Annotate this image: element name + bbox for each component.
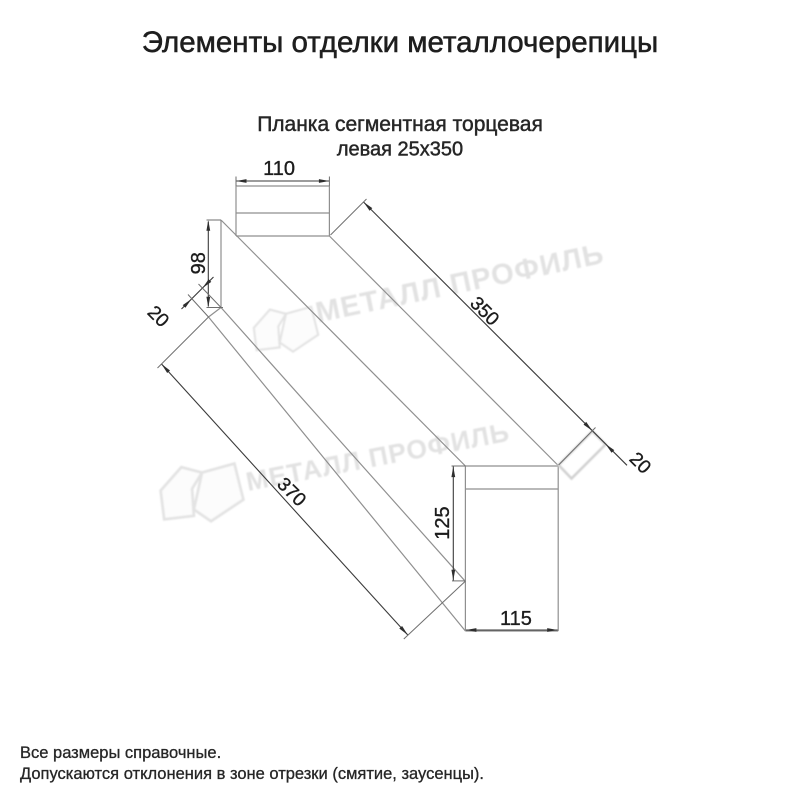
svg-text:110: 110 xyxy=(263,158,295,180)
svg-text:Элементы отделки металлочерепи: Элементы отделки металлочерепицы xyxy=(142,26,658,59)
svg-text:Все размеры справочные.: Все размеры справочные. xyxy=(20,744,221,762)
svg-text:Допускаются отклонения в зоне: Допускаются отклонения в зоне отрезки (с… xyxy=(20,765,484,783)
svg-text:125: 125 xyxy=(432,506,454,539)
svg-text:98: 98 xyxy=(188,252,210,274)
svg-text:левая 25х350: левая 25х350 xyxy=(337,139,463,161)
svg-text:Планка сегментная торцевая: Планка сегментная торцевая xyxy=(257,113,543,136)
svg-text:115: 115 xyxy=(500,608,532,630)
